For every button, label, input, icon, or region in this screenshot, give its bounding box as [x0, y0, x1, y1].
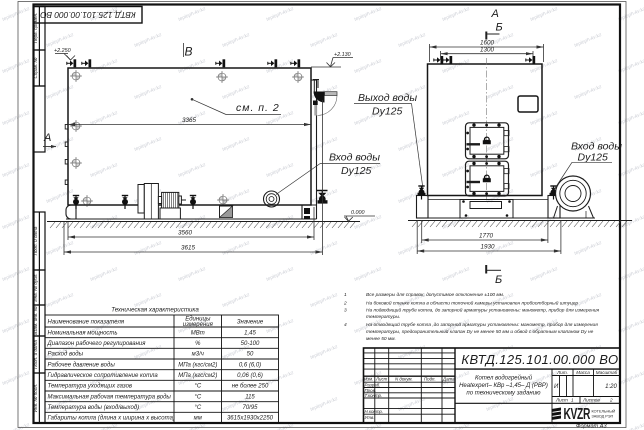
- svg-text:МВт: МВт: [191, 331, 205, 337]
- svg-text:А: А: [43, 132, 51, 144]
- svg-text:В: В: [185, 45, 193, 59]
- svg-text:КВТД.125.101.00.000 ВО: КВТД.125.101.00.000 ВО: [40, 10, 136, 20]
- svg-text:м3/ч: м3/ч: [192, 352, 204, 358]
- svg-text:измерения: измерения: [183, 322, 214, 328]
- svg-text:температуры, предохранительный: температуры, предохранительный клапан Dу…: [366, 328, 594, 335]
- svg-text:+2.250: +2.250: [54, 48, 71, 54]
- svg-text:Температура уходящих газов: Температура уходящих газов: [48, 384, 133, 390]
- svg-text:4: 4: [344, 322, 347, 328]
- svg-text:1930: 1930: [480, 244, 495, 251]
- svg-text:Температура воды (вход/выход): Температура воды (вход/выход): [48, 405, 140, 411]
- svg-text:Листов: Листов: [582, 398, 600, 403]
- svg-text:70/95: 70/95: [242, 405, 258, 411]
- svg-text:3615х1930х2250: 3615х1930х2250: [227, 416, 274, 422]
- svg-text:50: 50: [247, 352, 254, 358]
- svg-text:3560: 3560: [178, 230, 193, 237]
- svg-text:0.000: 0.000: [351, 210, 365, 216]
- svg-text:На боковой стенке котла в обла: На боковой стенке котла в области топочн…: [366, 299, 578, 306]
- svg-text:1: 1: [344, 292, 347, 298]
- svg-text:°С: °С: [194, 394, 201, 400]
- svg-text:N докум.: N докум.: [395, 377, 413, 382]
- svg-text:И: И: [554, 384, 559, 390]
- svg-text:Диапазон рабочего регулировани: Диапазон рабочего регулирования: [47, 341, 147, 347]
- svg-text:Пров.: Пров.: [365, 388, 377, 393]
- svg-text:3365: 3365: [182, 117, 197, 124]
- svg-text:Наименование показателя: Наименование показателя: [48, 320, 125, 326]
- svg-text:Heatexpert– КВр –1,45– Д (РВР): Heatexpert– КВр –1,45– Д (РВР): [459, 383, 548, 389]
- svg-text:Б: Б: [495, 274, 502, 286]
- svg-text:Расход воды: Расход воды: [48, 352, 84, 358]
- svg-text:А: А: [491, 8, 499, 20]
- svg-text:Техническая характеристика: Техническая характеристика: [111, 307, 199, 314]
- svg-text:На отводящий трубе котла ,до з: На отводящий трубе котла ,до запорной ар…: [366, 321, 598, 328]
- svg-text:Б: Б: [496, 22, 503, 34]
- svg-text:Гидравлическое сопротивление к: Гидравлическое сопротивление котла: [48, 373, 159, 379]
- svg-text:менее 50 мм.: менее 50 мм.: [366, 336, 396, 342]
- svg-text:Инв. № дубл.: Инв. № дубл.: [33, 273, 38, 301]
- svg-text:МПа (кгс/см2): МПа (кгс/см2): [178, 373, 217, 379]
- svg-text:МПа (кгс/см2): МПа (кгс/см2): [178, 362, 217, 368]
- svg-text:°С: °С: [194, 405, 201, 411]
- svg-text:1,45: 1,45: [244, 331, 256, 337]
- svg-text:Изм.: Изм.: [364, 377, 373, 382]
- svg-text:+2.130: +2.130: [334, 52, 351, 58]
- svg-text:2: 2: [343, 300, 347, 306]
- svg-text:Справ. №: Справ. №: [33, 58, 38, 79]
- svg-text:мм: мм: [194, 416, 202, 422]
- svg-text:Подп.: Подп.: [424, 377, 436, 382]
- svg-text:0,06 (0,6): 0,06 (0,6): [237, 373, 263, 379]
- svg-text:Н.контр.: Н.контр.: [365, 409, 384, 414]
- svg-text:1300: 1300: [480, 47, 495, 54]
- svg-text:Взам. инв. №: Взам. инв. №: [33, 306, 38, 334]
- svg-text:Лист: Лист: [555, 398, 568, 403]
- svg-text:Габариты котла (длина х ширина: Габариты котла (длина х ширина х высота): [48, 416, 175, 422]
- svg-text:Т.контр.: Т.контр.: [365, 393, 383, 398]
- svg-text:Масштаб: Масштаб: [596, 370, 618, 375]
- svg-text:Утв.: Утв.: [365, 415, 375, 420]
- svg-text:Дата: Дата: [442, 377, 455, 382]
- svg-text:Масса: Масса: [576, 370, 590, 375]
- svg-text:Значение: Значение: [237, 320, 264, 326]
- svg-text:1:20: 1:20: [605, 384, 617, 390]
- svg-text:50-100: 50-100: [241, 341, 260, 347]
- svg-text:см. п. 2: см. п. 2: [236, 102, 280, 114]
- svg-text:°С: °С: [194, 384, 201, 390]
- svg-text:Лит.: Лит.: [556, 370, 568, 375]
- svg-text:0,6 (6,0): 0,6 (6,0): [239, 362, 261, 368]
- svg-text:Разраб.: Разраб.: [365, 382, 381, 387]
- svg-text:Подп. и дата: Подп. и дата: [33, 226, 38, 255]
- svg-text:ЗАВОД РЭП: ЗАВОД РЭП: [592, 415, 614, 419]
- svg-text:Перв. примен.: Перв. примен.: [33, 13, 38, 44]
- svg-text:Вход воды: Вход воды: [329, 152, 380, 164]
- svg-text:Выход воды: Выход воды: [358, 92, 417, 104]
- svg-text:3: 3: [344, 308, 347, 314]
- svg-text:Инв. № подл.: Инв. № подл.: [33, 384, 38, 413]
- svg-text:На подводящий трубе котла, до: На подводящий трубе котла, до запорной а…: [366, 307, 599, 314]
- svg-text:по техническому заданию: по техническому заданию: [466, 391, 541, 397]
- svg-text:температуры.: температуры.: [366, 315, 400, 320]
- svg-text:Формат А3: Формат А3: [576, 423, 607, 429]
- svg-text:не более 250: не более 250: [232, 384, 269, 390]
- svg-text:Dy125: Dy125: [372, 106, 403, 118]
- svg-text:Лист: Лист: [375, 377, 388, 382]
- svg-text:1: 1: [571, 398, 574, 403]
- svg-text:KVZR: KVZR: [564, 405, 591, 423]
- svg-text:3615: 3615: [181, 245, 196, 252]
- svg-text:Все размеры для справок, допус: Все размеры для справок, допустимое откл…: [366, 292, 504, 298]
- svg-text:Dy125: Dy125: [578, 152, 609, 164]
- svg-text:%: %: [195, 341, 201, 347]
- svg-text:Подп. и дата: Подп. и дата: [33, 340, 38, 369]
- svg-text:2: 2: [609, 398, 613, 403]
- svg-text:КОТЕЛЬНЫЙ: КОТЕЛЬНЫЙ: [592, 410, 616, 414]
- svg-text:КВТД.125.101.00.000 ВО: КВТД.125.101.00.000 ВО: [461, 352, 618, 367]
- svg-text:Номинальная мощность: Номинальная мощность: [48, 331, 118, 337]
- svg-text:Максимальная рабочая температу: Максимальная рабочая температура воды: [48, 394, 172, 400]
- svg-text:Dy125: Dy125: [341, 165, 372, 177]
- svg-text:115: 115: [245, 394, 255, 400]
- svg-text:Рабочее давление воды: Рабочее давление воды: [48, 362, 116, 368]
- svg-text:Котел водогрейный: Котел водогрейный: [475, 375, 533, 382]
- svg-text:1770: 1770: [479, 233, 494, 240]
- svg-text:1600: 1600: [480, 40, 495, 47]
